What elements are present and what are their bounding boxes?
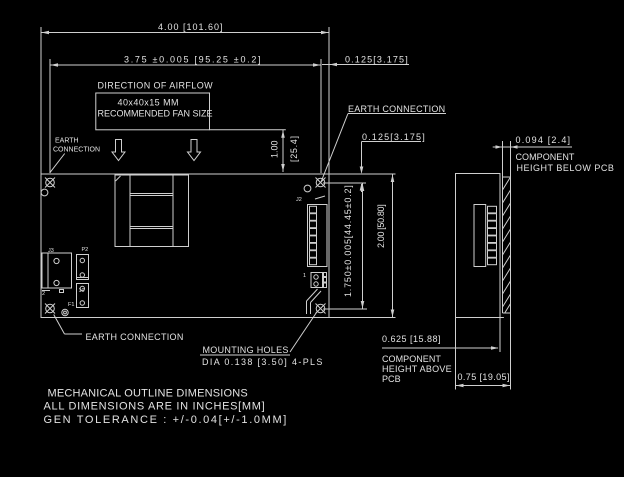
svg-text:PCB: PCB [382, 374, 401, 384]
svg-text:[25.4]: [25.4] [289, 135, 299, 162]
svg-text:1.750±0.005[44.45±0.2]: 1.750±0.005[44.45±0.2] [343, 184, 353, 297]
svg-text:MECHANICAL OUTLINE DIMENSIONS: MECHANICAL OUTLINE DIMENSIONS [48, 388, 248, 400]
svg-text:0.094 [2.4]: 0.094 [2.4] [516, 135, 572, 145]
svg-text:J2: J2 [296, 197, 302, 203]
svg-text:MOUNTING HOLES: MOUNTING HOLES [203, 345, 289, 355]
svg-text:DIA 0.138 [3.50] 4-PLS: DIA 0.138 [3.50] 4-PLS [202, 357, 324, 367]
svg-text:3.75 ±0.005 [95.25 ±0.2]: 3.75 ±0.005 [95.25 ±0.2] [124, 55, 262, 65]
svg-text:HEIGHT BELOW PCB: HEIGHT BELOW PCB [517, 163, 615, 173]
svg-text:CONNECTION: CONNECTION [53, 147, 100, 154]
svg-text:0.125[3.175]: 0.125[3.175] [345, 55, 409, 65]
svg-text:COMPONENT: COMPONENT [382, 354, 441, 364]
svg-text:0.625 [15.88]: 0.625 [15.88] [382, 334, 441, 344]
svg-text:2.00 [50.80]: 2.00 [50.80] [376, 205, 386, 248]
svg-text:1: 1 [303, 273, 306, 279]
svg-text:4.00 [101.60]: 4.00 [101.60] [158, 22, 224, 32]
svg-text:ALL DIMENSIONS ARE IN INCHES[M: ALL DIMENSIONS ARE IN INCHES[MM] [44, 401, 266, 413]
svg-text:EARTH: EARTH [55, 138, 79, 145]
svg-text:0.125[3.175]: 0.125[3.175] [362, 132, 426, 142]
svg-text:2: 2 [42, 291, 45, 297]
svg-text:EARTH CONNECTION: EARTH CONNECTION [348, 104, 445, 114]
svg-text:GEN TOLERANCE : +/-0.04[+/-1.0: GEN TOLERANCE : +/-0.04[+/-1.0MM] [44, 414, 288, 426]
svg-text:RECOMMENDED FAN SIZE: RECOMMENDED FAN SIZE [98, 109, 213, 119]
svg-text:F1: F1 [68, 302, 74, 308]
svg-text:10: 10 [79, 288, 85, 294]
svg-text:40x40x15 MM: 40x40x15 MM [118, 98, 179, 108]
svg-text:HEIGHT ABOVE: HEIGHT ABOVE [382, 364, 452, 374]
svg-text:0.75 [19.05]: 0.75 [19.05] [458, 372, 510, 382]
svg-text:EARTH CONNECTION: EARTH CONNECTION [86, 332, 184, 342]
svg-text:P2: P2 [82, 247, 89, 253]
svg-text:1.00: 1.00 [270, 140, 280, 158]
svg-text:COMPONENT: COMPONENT [516, 152, 575, 162]
svg-text:DIRECTION OF AIRFLOW: DIRECTION OF AIRFLOW [98, 81, 214, 91]
